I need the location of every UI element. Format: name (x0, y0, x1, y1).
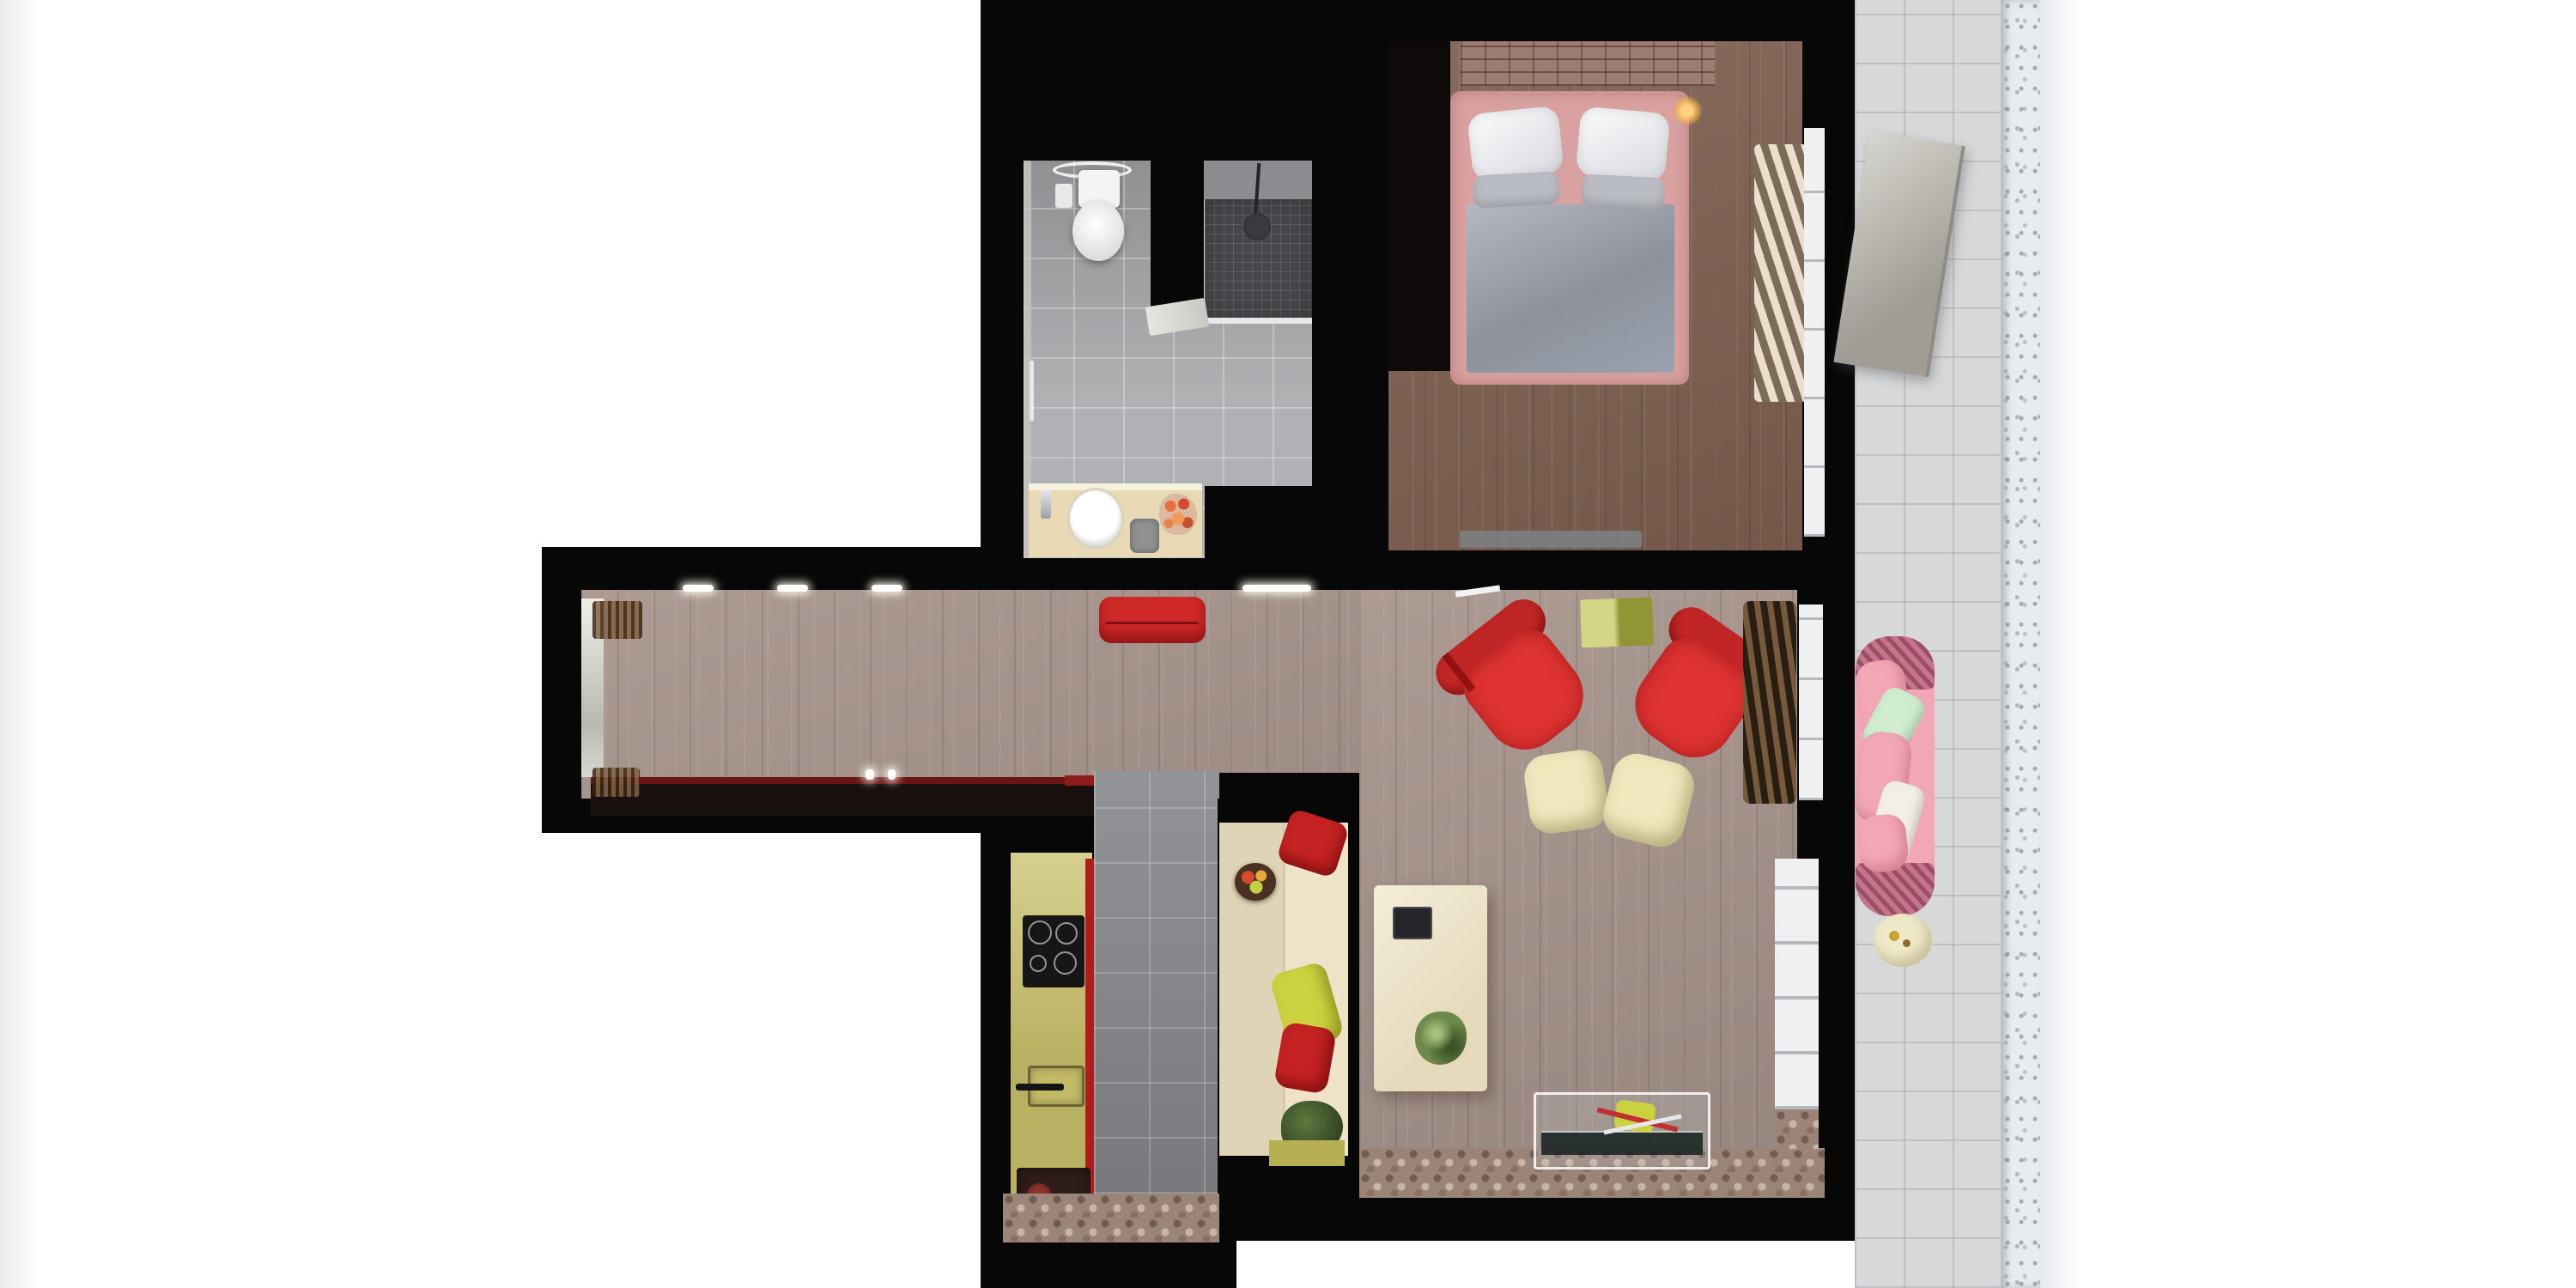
kitchen-red-accent-strip (1085, 859, 1094, 1211)
bathroom-pillar-wall (1151, 161, 1204, 307)
bedroom-closet-wall (1388, 41, 1450, 371)
window-mosaic-notch (1775, 1109, 1819, 1149)
kitchen-faucet-handle (1016, 1084, 1064, 1091)
living-window-upper (1799, 605, 1823, 800)
side-table-gold-item (1889, 931, 1899, 941)
vanity-sink (1067, 488, 1124, 550)
left-page-fade (0, 0, 39, 1288)
flower-bouquet (1159, 494, 1197, 535)
balcony-side-table (1874, 914, 1932, 967)
vanity-front-edge (1029, 483, 1202, 490)
balcony-pink-sofa (1856, 636, 1935, 916)
cooktop-burner (1055, 922, 1078, 945)
cooktop-burner (1054, 951, 1077, 975)
headboard-brick-wall (1461, 41, 1715, 86)
glass-shelf-smoked (1541, 1131, 1703, 1155)
console-candle-1 (866, 769, 874, 780)
floorplan-render (0, 0, 2576, 1288)
wardrobe-fringe-bottom (592, 768, 640, 797)
toilet-bowl (1072, 201, 1124, 261)
vanity-faucet (1041, 489, 1051, 519)
bedroom-window (1804, 128, 1825, 537)
bedroom-curtain (1754, 144, 1807, 402)
induction-cooktop (1023, 915, 1084, 987)
pouf-left (1522, 747, 1611, 836)
console-candle-2 (888, 769, 896, 780)
bed-foot-bench (1460, 531, 1642, 548)
hall-red-bench (1099, 597, 1206, 643)
kitchen-tile-walkway (1094, 771, 1218, 1194)
glass-console-table (1534, 1092, 1710, 1170)
living-spot (1242, 585, 1311, 592)
entry-mosaic-floor (1003, 1194, 1219, 1242)
hall-spot-3 (872, 585, 902, 592)
living-window-lower (1775, 859, 1819, 1109)
hall-spot-2 (777, 585, 808, 592)
wardrobe-fringe-top (592, 601, 642, 639)
bed-pillow-gray-left (1473, 171, 1560, 208)
brown-drape (1743, 601, 1796, 804)
hall-spot-1 (683, 585, 714, 592)
balustrade-outer-fade (2040, 0, 2083, 1288)
fruit-plate (1235, 863, 1276, 901)
bedside-lamp (1673, 96, 1702, 125)
toilet-shelf (1055, 184, 1072, 208)
bathroom-stool (1130, 519, 1159, 553)
kitchen-counter (1011, 853, 1092, 1194)
cooktop-burner (1030, 955, 1047, 972)
wall-entry-leg (981, 1241, 1236, 1288)
bed-duvet (1467, 204, 1674, 373)
dining-table-tablet (1393, 907, 1432, 939)
side-table-gold-item (1903, 939, 1911, 947)
shower-head (1243, 213, 1271, 240)
olive-side-table (1580, 598, 1654, 648)
sofa-wicker-arm-bottom (1856, 863, 1935, 916)
bed-pillow-gray-right (1581, 174, 1665, 211)
sofa-pink-cushion-bottom (1856, 812, 1911, 873)
bathroom-corner-wall (1205, 486, 1312, 558)
shower-threshold (1205, 318, 1312, 324)
cooktop-burner (1028, 920, 1052, 945)
balustrade-ornate-edge (2001, 0, 2040, 1288)
towel-rail (1030, 361, 1034, 421)
bed-pillow-white-left (1467, 106, 1564, 182)
banquette-olive-base (1269, 1140, 1345, 1166)
hall-red-bench-seam (1106, 622, 1199, 624)
bed-pillow-white-right (1576, 106, 1671, 183)
